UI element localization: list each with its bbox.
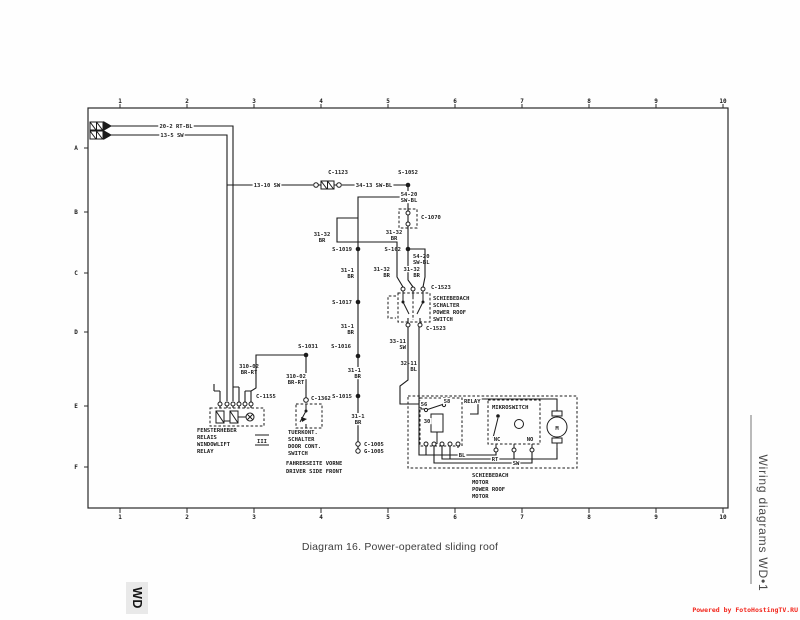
diagram-label: POWER ROOF	[472, 487, 505, 493]
diagram-label: MOTOR	[472, 494, 489, 500]
diagram-label: SWITCH	[433, 317, 453, 323]
diagram-label: C-1123	[328, 170, 348, 176]
diagram-label: 34-13 SW-BL	[356, 183, 393, 189]
section-tab: WD	[126, 582, 148, 614]
diagram-label: C-1362	[311, 396, 331, 402]
diagram-label: S-1019	[332, 247, 352, 253]
diagram-label: BR-RT	[288, 380, 305, 386]
grid-column-label: 2	[185, 514, 189, 521]
grid-row-label: E	[74, 403, 78, 410]
watermark-text: Powered by FotoHostingTV.RU	[692, 606, 798, 614]
grid-column-label: 1	[118, 514, 122, 521]
grid-column-label: 4	[319, 98, 323, 105]
diagram-label: BR	[319, 238, 326, 244]
grid-column-label: 1	[118, 98, 122, 105]
diagram-label: S-1031	[298, 344, 319, 350]
scanned-wiring-page: 20-2 RT-BL13-5 SW13-10 SWC-112334-13 SW-…	[0, 0, 800, 620]
wires	[111, 126, 557, 463]
grid-column-label: 6	[453, 514, 457, 521]
diagram-label: SCHIEBEDACH	[472, 473, 508, 479]
grid-column-label: 3	[252, 98, 256, 105]
grid-column-label: 2	[185, 98, 189, 105]
diagram-label: WINDOWLIFT	[197, 442, 231, 448]
ruler-ticks	[84, 104, 723, 513]
grid-column-label: 6	[453, 98, 457, 105]
section-tab-text: WD	[130, 587, 144, 609]
diagram-label: SW-BL	[401, 198, 418, 204]
grid-row-label: F	[74, 464, 78, 471]
diagram-label: 13-5 SW	[160, 133, 184, 139]
grid-column-label: 8	[587, 98, 591, 105]
diagram-label: BR-RT	[241, 370, 258, 376]
diagram-label: BL	[459, 453, 466, 459]
diagram-label: G-1005	[364, 449, 384, 455]
grid-column-label: 10	[719, 98, 727, 105]
diagram-label: S-1016	[331, 344, 352, 350]
grid-row-label: D	[74, 329, 78, 336]
diagram-label: III	[257, 439, 267, 445]
diagram-label: C-1005	[364, 442, 384, 448]
grid-column-label: 3	[252, 514, 256, 521]
door-switch-housing	[296, 404, 322, 428]
diagram-label: RELAY	[197, 449, 214, 455]
grid-column-label: 10	[719, 514, 727, 521]
diagram-label: C-1523	[426, 326, 446, 332]
diagram-label: SCHIEBEDACH	[433, 296, 469, 302]
diagram-label: BR	[391, 236, 398, 242]
diagram-label: 20-2 RT-BL	[159, 124, 193, 130]
diagram-label: SW-BL	[413, 260, 430, 266]
diagram-label: 13-10 SW	[254, 183, 281, 189]
diagram-label: NC	[494, 437, 501, 443]
diagram-label: S-1015	[332, 394, 352, 400]
diagram-label: DRIVER SIDE FRONT	[286, 469, 343, 475]
diagram-label: 58	[444, 399, 451, 405]
diagram-label: S-1017	[332, 300, 352, 306]
diagram-label: POWER ROOF	[433, 310, 466, 316]
diagram-labels: 20-2 RT-BL13-5 SW13-10 SWC-112334-13 SW-…	[74, 98, 727, 521]
diagram-label: C-1523	[431, 285, 451, 291]
diagram-label: NO	[527, 437, 534, 443]
power-feed-arrow-icon	[90, 122, 111, 139]
grid-column-label: 4	[319, 514, 323, 521]
grid-row-label: C	[74, 270, 78, 277]
wiring-diagram-canvas: 20-2 RT-BL13-5 SW13-10 SWC-112334-13 SW-…	[0, 0, 800, 620]
diagram-label: BR	[383, 273, 390, 279]
diagram-label: S-1052	[398, 170, 418, 176]
diagram-label: FENSTERHEBER	[197, 428, 237, 434]
grid-row-label: B	[74, 209, 78, 216]
diagram-label: SCHALTER	[288, 437, 315, 443]
diagram-label: RELAIS	[197, 435, 217, 441]
diagram-label: SCHALTER	[433, 303, 460, 309]
grid-column-label: 7	[520, 514, 524, 521]
diagram-label: BR	[413, 273, 420, 279]
diagram-label: BR	[347, 274, 354, 280]
microswitch-symbols	[493, 418, 532, 448]
diagram-label: 56	[421, 402, 428, 408]
door-switch-contact	[300, 404, 306, 428]
diagram-label: RELAY	[464, 399, 481, 405]
grid-column-label: 5	[386, 98, 390, 105]
diagram-label: SWITCH	[288, 451, 308, 457]
connector-c1123-icon	[321, 181, 334, 189]
diagram-label: C-1155	[256, 394, 276, 400]
grid-column-label: 9	[654, 98, 658, 105]
grid-column-label: 7	[520, 98, 524, 105]
diagram-label: S-162	[384, 247, 401, 253]
grid-column-label: 8	[587, 514, 591, 521]
diagram-label: BR	[355, 420, 362, 426]
diagram-label: BR	[354, 374, 361, 380]
diagram-label: BR	[347, 330, 354, 336]
diagram-label: SW	[513, 461, 520, 467]
diagram-label: C-1070	[421, 215, 441, 221]
diagram-label: FAHRERSEITE VORNE	[286, 461, 342, 467]
diagram-label: SW	[399, 345, 406, 351]
diagram-label: TUERKONT.	[288, 430, 318, 436]
diagram-label: DOOR CONT.	[288, 444, 321, 450]
section-side-label: Wiring diagrams WD•1	[756, 455, 770, 592]
grid-column-label: 5	[386, 514, 390, 521]
diagram-label: RT	[492, 457, 499, 463]
diagram-label: MIKROSWITCH	[492, 405, 528, 411]
connector-pins	[218, 183, 534, 454]
diagram-label: BL	[410, 367, 417, 373]
diagram-caption: Diagram 16. Power-operated sliding roof	[0, 541, 800, 553]
diagram-label: 30	[424, 419, 431, 425]
diagram-label: MOTOR	[472, 480, 489, 486]
grid-column-label: 9	[654, 514, 658, 521]
grid-row-label: A	[74, 145, 78, 152]
